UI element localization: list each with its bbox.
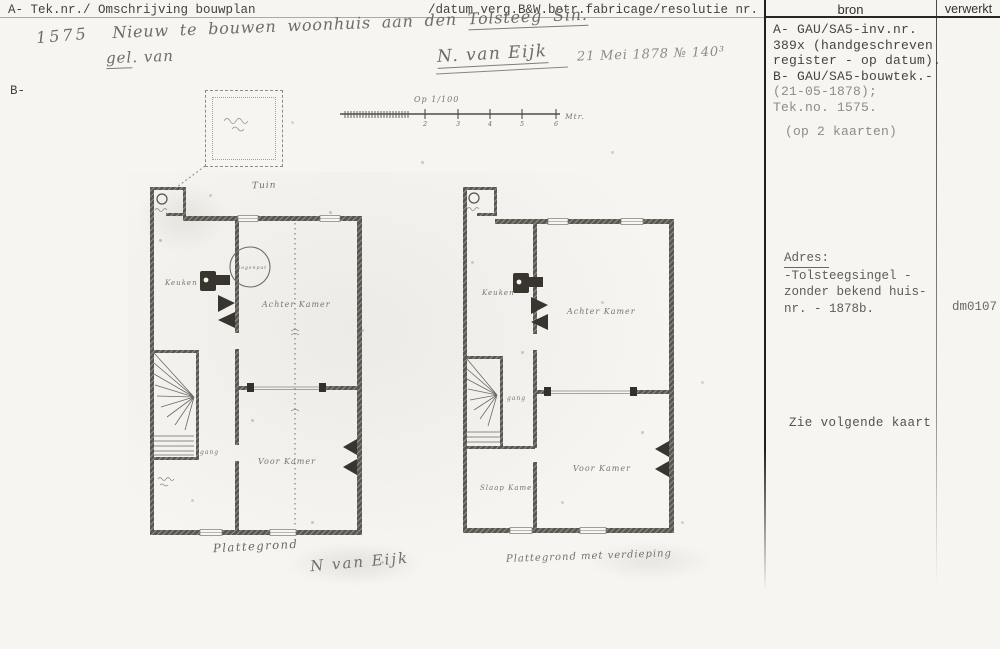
architect-signature: N van Eijk: [309, 549, 409, 576]
adres-line: -Tolsteegsingel -: [784, 268, 927, 285]
walls: [150, 187, 362, 535]
staircase: [467, 359, 500, 442]
bron-line: B- GAU/SA5-bouwtek.-: [773, 69, 935, 85]
scale-tick-label: 4: [487, 120, 492, 128]
bron-line: A- GAU/SA5-inv.nr.: [773, 22, 935, 38]
handwritten-tek-nr: 1575: [35, 24, 89, 48]
hall-label: gang: [507, 395, 526, 402]
adres-line: nr. - 1878b.: [784, 301, 927, 318]
back-room-label: Achter Kamer: [261, 300, 331, 309]
scale-tick-label: 2: [422, 120, 427, 128]
margin-b-label: B-: [10, 84, 25, 98]
bron-line: (op 2 kaarten): [773, 124, 935, 140]
adres-panel: Adres: -Tolsteegsingel - zonder bekend h…: [784, 250, 927, 317]
door-opening-lines: [551, 391, 630, 394]
left-floorplan: Keuken Regenput Achter Kamer Voor Kamer …: [140, 183, 375, 548]
kitchen-label: Keuken: [164, 279, 198, 287]
microfiche-code: dm0107: [952, 300, 997, 314]
scale-tick-label: 6: [554, 120, 558, 128]
bron-column-header: bron: [765, 2, 936, 17]
annex-scribble-label: [155, 209, 167, 212]
scale-tick-label: 5: [520, 120, 524, 128]
stove-dot: [204, 278, 209, 283]
stove-dot: [517, 280, 522, 285]
rain-well-label: Regenput: [236, 265, 267, 271]
verwerkt-column-header: verwerkt: [937, 2, 1000, 16]
scale-unit: Mtr.: [564, 112, 585, 121]
privy-circle: [157, 194, 167, 204]
bron-line: (21-05-1878);: [773, 84, 935, 100]
right-plan-caption: Plattegrond met verdieping: [506, 548, 672, 565]
door-jambs: [247, 383, 326, 392]
annex-scribble-label: [467, 208, 479, 211]
inset-dashed-square: [205, 90, 283, 167]
bron-line: register - op datum).: [773, 53, 935, 69]
bron-line: 389x (handgeschreven: [773, 38, 935, 54]
scale-bar: Op 1/100 2 3 4 5 6 Mtr.: [332, 92, 592, 130]
handwritten-date-resolution: 21 Mei 1878 № 140³: [577, 44, 725, 64]
hall-label: gang: [200, 449, 219, 456]
bedroom-label: Slaap Kamer: [480, 484, 537, 492]
adres-line: zonder bekend huis-: [784, 284, 927, 301]
inset-inner-square: [212, 97, 276, 160]
wrap-underlined: gel: [106, 48, 133, 69]
adres-heading: Adres:: [784, 250, 829, 268]
handwritten-architect: N. van Eijk: [437, 41, 549, 67]
archive-card-page: A- Tek.nr./ Omschrijving bouwplan /datum…: [0, 0, 1000, 649]
scale-title: Op 1/100: [414, 95, 459, 104]
front-room-label: Voor Kamer: [573, 464, 631, 473]
door-jambs: [544, 387, 637, 396]
staircase: [154, 353, 194, 455]
door-swing: [343, 439, 357, 475]
back-room-label: Achter Kamer: [566, 307, 636, 316]
scan-speckles: [0, 0, 1, 1]
right-floorplan: Keuken Achter Kamer gang Slaap Kamer Voo…: [455, 183, 685, 543]
walls: [463, 187, 674, 533]
privy-circle: [469, 193, 479, 203]
door-swing: [655, 441, 669, 477]
front-room-label: Voor Kamer: [258, 457, 316, 466]
scale-tick-label: 3: [456, 120, 460, 128]
header-left-label: A- Tek.nr./ Omschrijving bouwplan: [8, 3, 256, 17]
column-divider-bron-verwerkt: [936, 0, 937, 585]
left-plan-caption: Plattegrond: [213, 537, 299, 555]
small-room-scribble-label: [158, 478, 174, 487]
door-opening-lines: [254, 387, 319, 390]
next-card-note: Zie volgende kaart: [789, 416, 931, 430]
handwritten-wrap-line: gel. van: [106, 47, 174, 67]
bron-line: Tek.no. 1575.: [773, 100, 935, 116]
column-divider-main: [764, 0, 766, 590]
street-name-underlined: Tolsteeg Sin.: [467, 5, 588, 31]
kitchen-label: Keuken: [481, 289, 515, 297]
wrap-rest: . van: [132, 47, 174, 66]
bron-panel: A- GAU/SA5-inv.nr. 389x (handgeschreven …: [773, 22, 935, 140]
